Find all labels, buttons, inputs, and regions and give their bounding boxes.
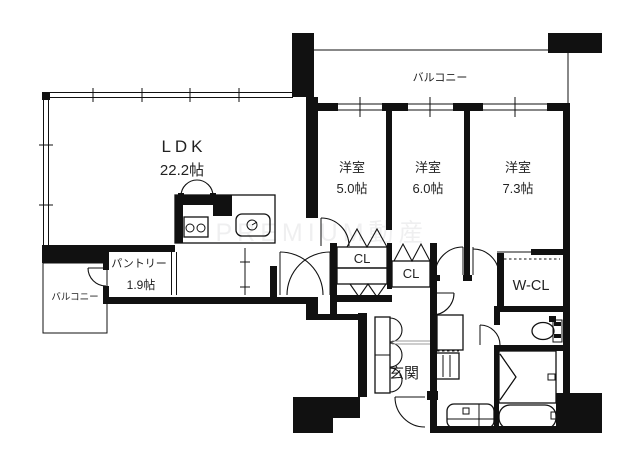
- walk-in-closet-zone: W-CL: [497, 252, 560, 294]
- bedroom2-size: 6.0帖: [412, 181, 443, 196]
- pantry-label: パントリー: [111, 257, 167, 270]
- washing-machine-icon: [436, 351, 459, 379]
- entrance-door: [395, 397, 425, 427]
- shower-floor: [499, 351, 556, 403]
- bedroom3-size: 7.3帖: [502, 181, 533, 196]
- room-labels: LDK 22.2帖 洋室 5.0帖 洋室 6.0帖 洋室 7.3帖 玄関: [160, 137, 534, 382]
- toilet-door: [480, 325, 500, 345]
- balcony-top-zone: バルコニー: [314, 50, 568, 103]
- closet2-zone: CL: [392, 244, 430, 287]
- vanity-icon: [447, 404, 494, 428]
- bathtub-icon: [499, 405, 559, 429]
- hall-storage-box: [437, 315, 463, 350]
- bedroom2-door: [435, 247, 463, 275]
- balcony-top-label: バルコニー: [413, 71, 468, 84]
- bedroom3-label: 洋室: [505, 160, 531, 175]
- bedroom3-door: [473, 247, 499, 275]
- ldk-size: 22.2帖: [160, 162, 204, 179]
- ldk-label: LDK: [161, 137, 206, 156]
- kitchen-double-door: [181, 180, 213, 196]
- balcony-left-zone: バルコニー: [43, 263, 107, 333]
- pantry-room: パントリー 1.9帖: [111, 252, 176, 295]
- bedroom1-size: 5.0帖: [336, 181, 367, 196]
- floorplan-drawing: PREMIUM動産: [0, 0, 644, 467]
- entrance-label: 玄関: [389, 365, 419, 382]
- bedroom-windows: [338, 97, 547, 117]
- closet2-label: CL: [403, 266, 420, 281]
- bathroom-zone: [499, 351, 559, 429]
- ldk-double-door: [280, 252, 330, 295]
- toilet-icon: [532, 316, 562, 342]
- bedroom1-label: 洋室: [339, 160, 365, 175]
- stove-icon: [184, 217, 208, 237]
- balcony-left-label: バルコニー: [51, 292, 98, 303]
- window-bedroom3: [483, 97, 547, 117]
- washroom-zone: [436, 315, 494, 428]
- bedroom2-label: 洋室: [415, 160, 441, 175]
- bathroom-fold-door: [500, 354, 516, 400]
- window-bedroom2: [408, 97, 453, 117]
- doors: [280, 218, 516, 427]
- window-bedroom1: [338, 97, 382, 117]
- floorplan-page: PREMIUM動産: [0, 0, 644, 467]
- pantry-size: 1.9帖: [127, 277, 156, 292]
- closet1-label: CL: [354, 251, 371, 266]
- walk-in-closet-label: W-CL: [513, 278, 550, 294]
